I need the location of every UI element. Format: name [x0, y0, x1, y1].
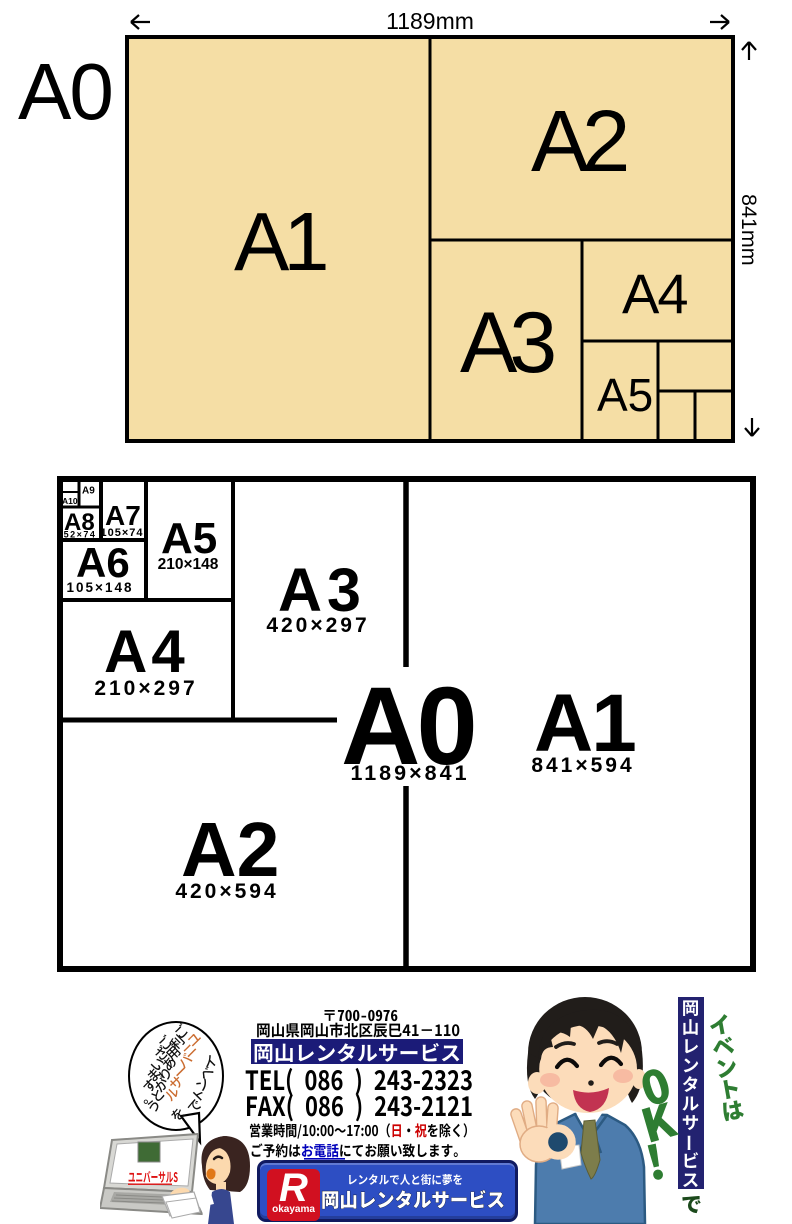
svg-text:210×297: 210×297 — [94, 677, 197, 700]
svg-text:A9: A9 — [82, 486, 95, 497]
svg-text:420×297: 420×297 — [266, 614, 369, 637]
svg-text:A1: A1 — [234, 195, 326, 288]
svg-text:A4: A4 — [104, 618, 189, 685]
svg-text:105×148: 105×148 — [67, 580, 134, 595]
svg-text:52×74: 52×74 — [64, 530, 97, 540]
svg-text:420×594: 420×594 — [175, 880, 278, 903]
svg-text:A10: A10 — [62, 496, 78, 506]
svg-text:A5: A5 — [597, 369, 653, 421]
svg-text:841×594: 841×594 — [531, 754, 634, 777]
svg-text:A6: A6 — [76, 539, 130, 586]
svg-text:1189×841: 1189×841 — [350, 761, 469, 785]
svg-text:A3: A3 — [460, 295, 554, 391]
svg-text:A2: A2 — [531, 93, 627, 190]
svg-text:1189mm: 1189mm — [386, 8, 474, 34]
svg-text:210×148: 210×148 — [158, 556, 219, 573]
svg-text:841mm: 841mm — [737, 194, 761, 266]
svg-text:105×74: 105×74 — [100, 527, 143, 539]
svg-text:A0: A0 — [18, 47, 112, 136]
svg-text:A4: A4 — [622, 262, 687, 325]
